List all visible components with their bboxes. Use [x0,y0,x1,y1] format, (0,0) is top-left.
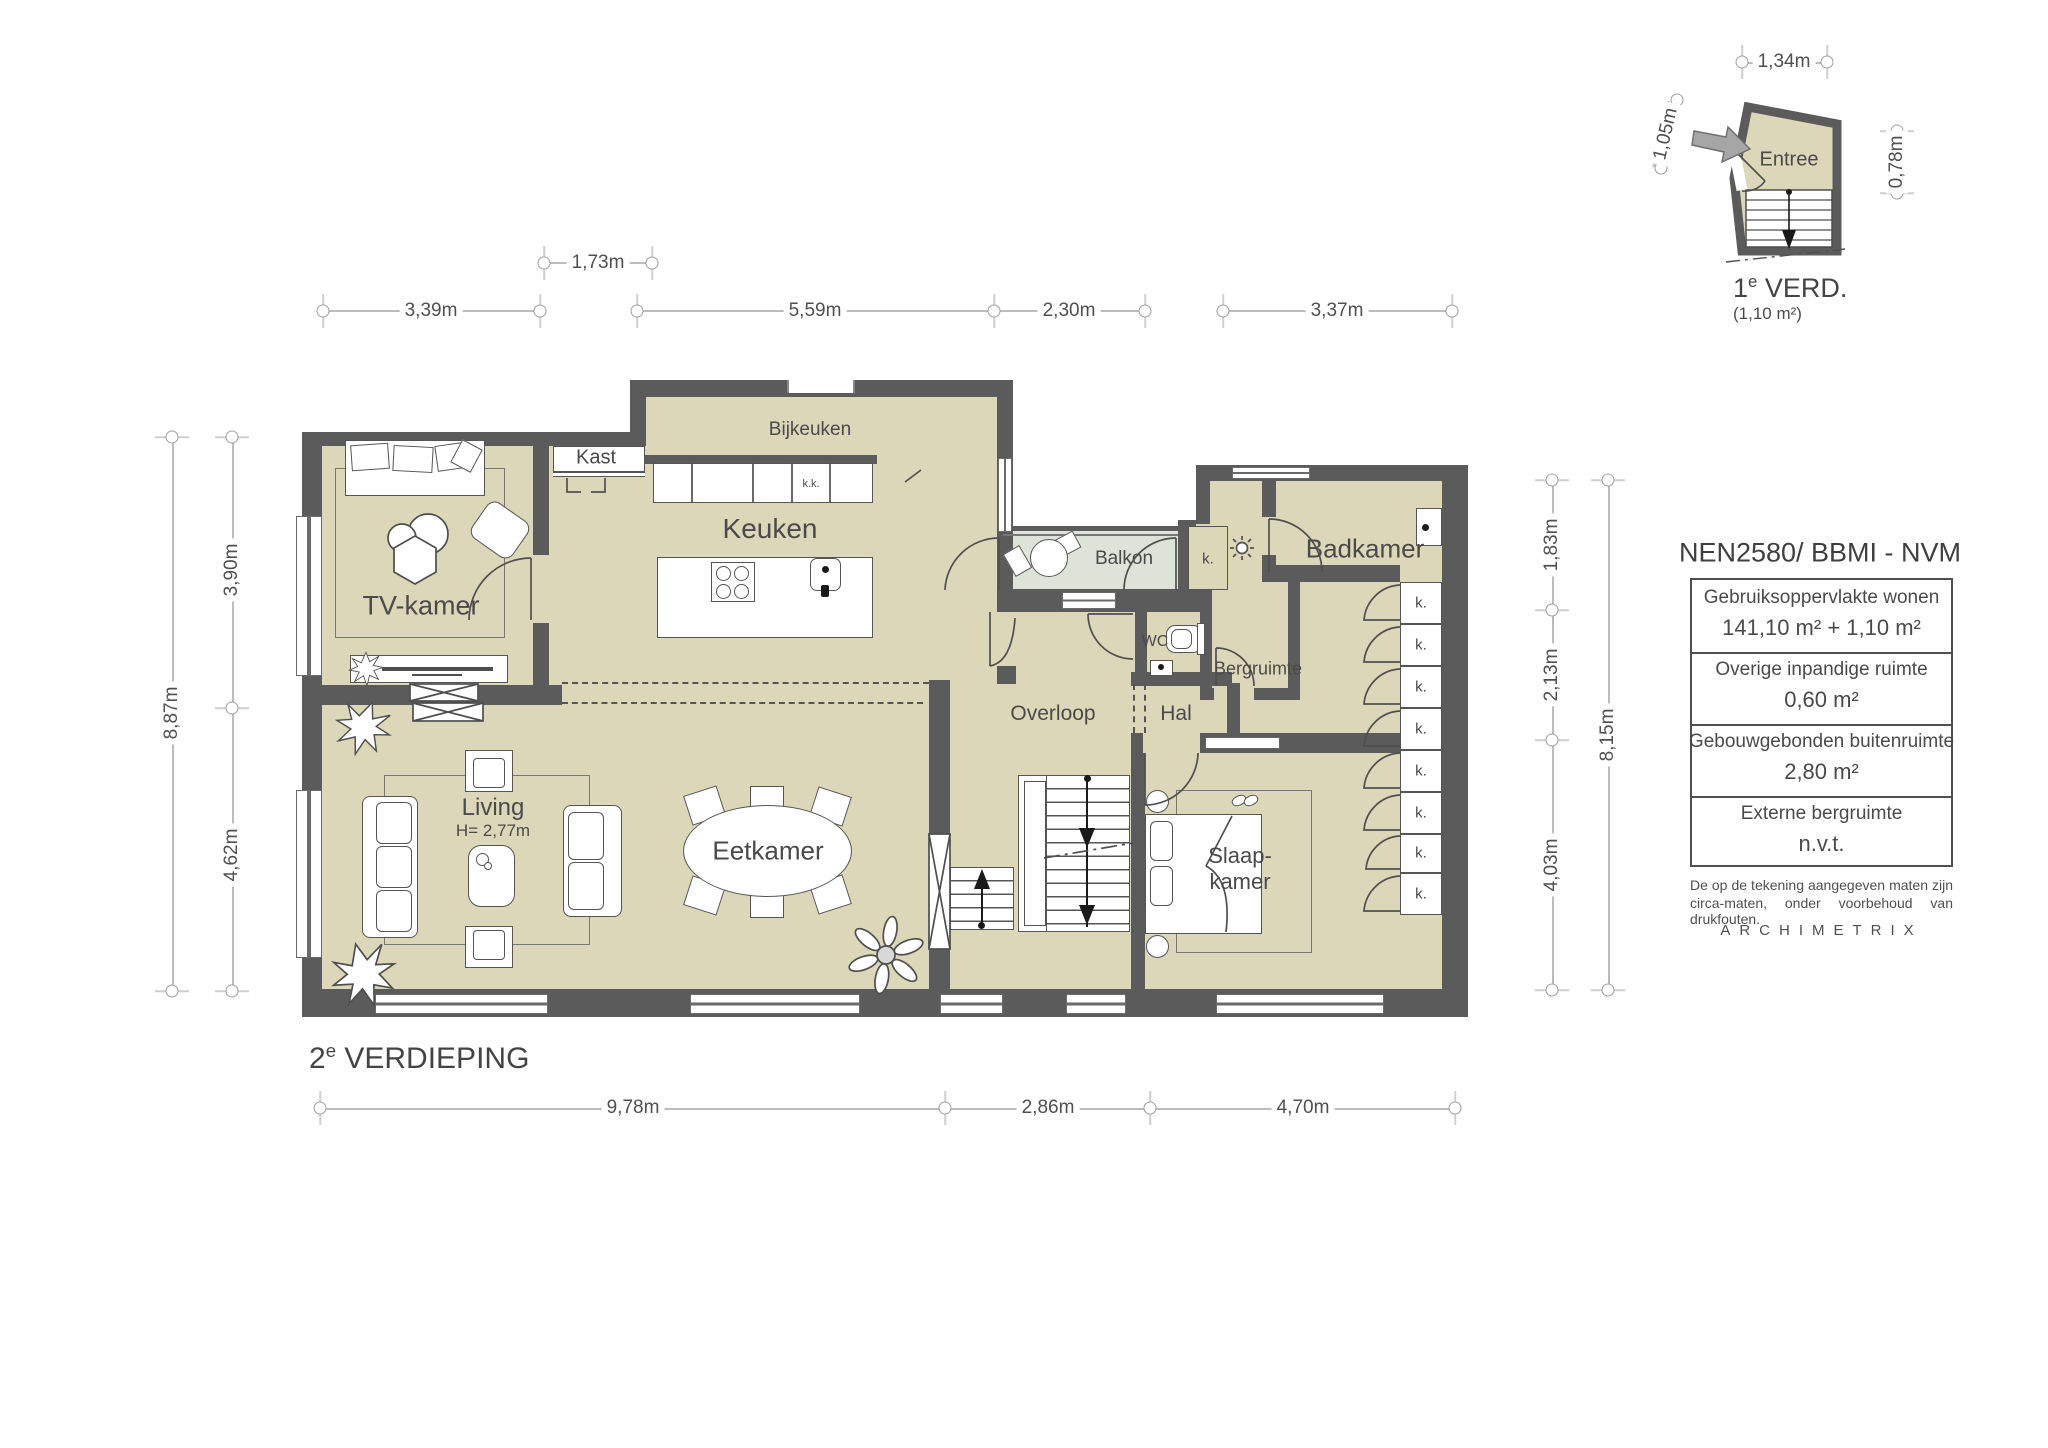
legend-divider [1692,652,1951,654]
legend-row-label: Gebouwgebonden buitenruimte [1689,731,1954,753]
dim-node [1546,984,1559,997]
legend-title: NEN2580/ BBMI - NVM [1679,538,1961,569]
legend-row-value: 2,80 m² [1784,759,1859,785]
legend-row-value: 0,60 m² [1784,687,1859,713]
legend-divider [1692,796,1951,798]
dim-node [1546,474,1559,487]
dim-node [1217,305,1230,318]
door-arc [1088,614,1133,659]
door-arc [945,538,999,590]
closet-label: k. [1415,845,1427,862]
closet-label: k. [1415,763,1427,780]
plant-icon [325,936,403,1014]
closet-label: k. [1415,886,1427,903]
label-living-height: H= 2,77m [456,821,530,841]
label-balcony-closet: k. [1202,551,1214,568]
closet-door [1364,585,1400,620]
room-label-living: Living [462,794,525,822]
closet-label: k. [1415,679,1427,696]
room-label-slaapkamer-2: kamer [1209,869,1270,895]
room-label-hal: Hal [1160,702,1192,726]
inset-plan [1692,107,1845,262]
room-label-overloop: Overloop [1010,702,1095,726]
dim-label: 4,70m [1272,1097,1335,1119]
dim-label: 9,78m [602,1097,665,1119]
dim-label: 8,87m [161,682,183,745]
closet-door [1364,753,1400,788]
inset-area: (1,10 m²) [1733,304,1802,324]
dim-node [1602,984,1615,997]
dim-node [1139,305,1152,318]
dim-node [1449,1102,1462,1115]
dim-node [226,702,239,715]
label-kitchen-cabinet: k.k. [802,478,819,490]
dim-node [534,305,547,318]
inset-title: 1e VERD. [1733,272,1847,304]
closet-door [1366,836,1400,869]
sliding-door-hook [567,478,581,492]
dim-node [631,305,644,318]
closet-label: k. [1415,595,1427,612]
legend-note-line1: De op de tekening aangegeven maten zijn [1690,877,1953,893]
legend-row-value: 141,10 m² + 1,10 m² [1722,615,1921,641]
closet-door [1364,711,1400,746]
room-label-kast: Kast [576,447,616,470]
dim-node [317,305,330,318]
closet-door [1364,669,1400,704]
legend-row-label: Externe bergruimte [1741,803,1903,825]
ceiling-light-icon [1230,536,1254,560]
dim-label: 1,34m [1753,51,1816,73]
room-label-keuken: Keuken [723,513,818,545]
dim-label: 4,03m [1541,834,1563,897]
dim-node [1821,56,1834,69]
dim-node [939,1102,952,1115]
closet-door [1364,795,1400,830]
door-arc [1145,753,1198,805]
dim-label: 1,73m [567,252,630,274]
dim-label: 4,62m [221,824,243,887]
dim-label: 1,83m [1541,514,1563,577]
dim-node [314,1102,327,1115]
dim-node [988,305,1001,318]
stairs-cut-line [1044,843,1133,858]
room-label-wc: WC [1142,633,1169,651]
door-swing-line [905,470,921,482]
dim-label: 2,13m [1541,644,1563,707]
dim-label: 3,39m [400,300,463,322]
dim-node [1144,1102,1157,1115]
room-label-bijkeuken: Bijkeuken [769,419,851,441]
door-arc [990,618,1015,666]
legend-row-label: Gebruiksoppervlakte wonen [1704,587,1940,609]
legend-brand: ARCHIMETRIX [1690,922,1953,939]
dim-label: 0,78m [1886,131,1908,194]
room-label-slaapkamer-1: Slaap- [1208,843,1272,869]
dim-node [226,985,239,998]
plant-icon [328,693,398,763]
legend-row-label: Overige inpandige ruimte [1715,659,1927,681]
dim-node [1446,305,1459,318]
dim-label: 2,86m [1017,1097,1080,1119]
dim-label: 2,30m [1038,300,1101,322]
inset-room-label-entree: Entree [1760,149,1819,172]
inset-door-opening [1735,154,1742,190]
dim-node [1602,474,1615,487]
legend-row-value: n.v.t. [1798,831,1844,857]
closet-label: k. [1415,721,1427,738]
dim-node [538,257,551,270]
dim-node [646,257,659,270]
room-label-badkamer: Badkamer [1306,534,1425,565]
closet-door [1364,627,1400,662]
dim-node [1546,604,1559,617]
dim-label: 3,90m [221,539,243,602]
room-label-bergruimte: Bergruimte [1214,659,1302,680]
closet-label: k. [1415,637,1427,654]
dim-node [166,985,179,998]
dim-node [1546,734,1559,747]
dim-label: 3,37m [1306,300,1369,322]
sliding-door-hook [591,478,605,492]
room-label-balkon: Balkon [1095,548,1153,570]
closet-label: k. [1415,805,1427,822]
dim-label: 8,15m [1597,704,1619,767]
floor-title: 2e VERDIEPING [309,1040,529,1076]
room-label-tv-kamer: TV-kamer [362,591,479,622]
flower-icon [847,915,925,994]
plant-icon [349,652,382,685]
floorplan-page: TV-kamer Kast Bijkeuken Keuken k.k. Balk… [0,0,2048,1448]
legend-divider [1692,724,1951,726]
dim-label: 5,59m [784,300,847,322]
dim-node [1736,56,1749,69]
closet-door [1364,876,1400,911]
dim-node [226,431,239,444]
legend-table: Gebruiksoppervlakte wonen 141,10 m² + 1,… [1690,578,1953,867]
room-label-eetkamer: Eetkamer [712,836,823,867]
dim-node [166,431,179,444]
